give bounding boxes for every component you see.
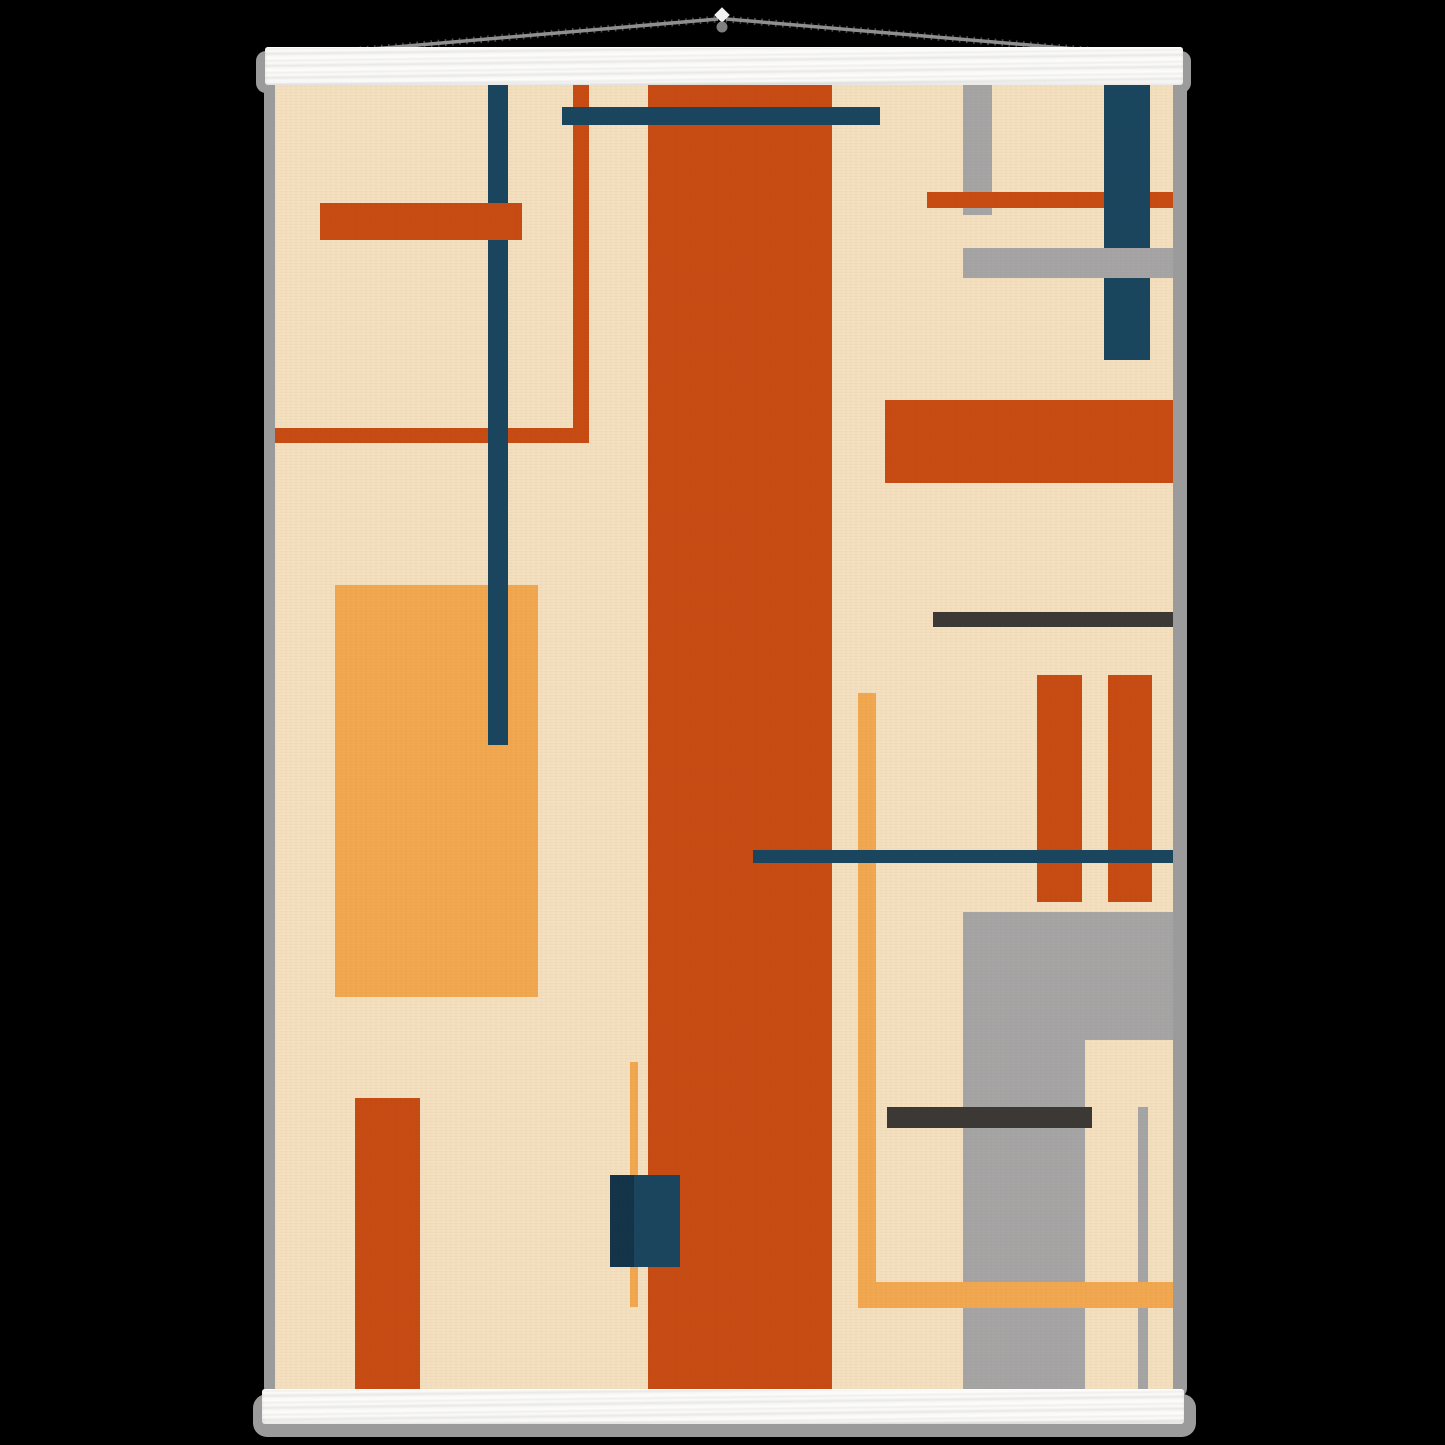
rust-line-vertical-topleft bbox=[573, 85, 589, 443]
gray-line-vertical-bottomright bbox=[1138, 1107, 1148, 1389]
poster-artwork bbox=[275, 85, 1173, 1389]
cord-apex-tip bbox=[714, 7, 730, 23]
navy-line-vertical-left bbox=[488, 85, 508, 745]
rust-rect-right bbox=[885, 400, 1173, 483]
cream-notch-bottomright bbox=[1085, 1040, 1173, 1389]
amber-line-vertical-right bbox=[858, 693, 876, 1308]
navy-line-middle bbox=[753, 850, 1173, 863]
amber-bar-bottomright bbox=[858, 1282, 1173, 1308]
rust-bar-vertical-right-1 bbox=[1037, 675, 1082, 902]
darkgray-bar-bottomright bbox=[887, 1107, 1092, 1128]
rust-bar-vertical-right-2 bbox=[1108, 675, 1152, 902]
rust-bar-topleft bbox=[320, 203, 522, 240]
poster-right-shadow bbox=[1172, 80, 1187, 1398]
bottom-wooden-rail bbox=[262, 1389, 1184, 1424]
rust-line-horizontal-left bbox=[275, 428, 589, 443]
gray-bar-horizontal-topright bbox=[963, 248, 1173, 278]
product-scene bbox=[0, 0, 1445, 1445]
cord-knob bbox=[717, 22, 728, 33]
navy-rect-bottomleft-shade bbox=[610, 1175, 634, 1267]
navy-bar-top bbox=[562, 107, 880, 125]
darkgray-line-right bbox=[933, 612, 1173, 627]
top-wooden-rail bbox=[265, 47, 1183, 85]
navy-bar-vertical-topright bbox=[1104, 85, 1150, 360]
rust-rect-bottomleft bbox=[355, 1098, 420, 1389]
